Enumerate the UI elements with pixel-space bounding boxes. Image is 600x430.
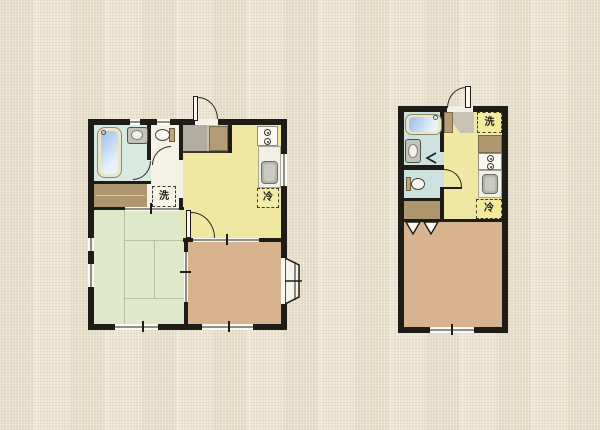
- washing-machine-box: 洗: [477, 112, 502, 133]
- bay-window: [285, 253, 305, 309]
- washbasin-bowl: [131, 130, 143, 140]
- sink-basin: [264, 164, 275, 181]
- window: [113, 324, 160, 330]
- tatami-line: [124, 210, 125, 324]
- washing-machine-box: 洗: [152, 186, 176, 207]
- burner-icon: [264, 138, 271, 145]
- entrance-door-arc: [198, 97, 218, 119]
- faucet-icon: [433, 115, 438, 120]
- main-room: [404, 222, 502, 327]
- window: [88, 262, 94, 289]
- washbasin-bowl: [408, 144, 418, 158]
- wall: [179, 125, 183, 160]
- tatami-room: [94, 210, 184, 324]
- burner-icon: [487, 163, 494, 170]
- tatami-line: [124, 298, 184, 299]
- sink-basin: [485, 177, 495, 191]
- burner-icon: [264, 129, 271, 136]
- entrance-opening: [195, 119, 218, 125]
- wall: [228, 125, 232, 153]
- door-tick: [226, 234, 228, 245]
- refrigerator-label: 冷: [484, 204, 494, 214]
- bathtub-water: [101, 131, 118, 174]
- burner-dot: [267, 132, 269, 134]
- wall: [94, 181, 151, 184]
- toilet-icon: [155, 129, 170, 141]
- wall: [440, 187, 444, 222]
- burner-dot: [490, 166, 492, 168]
- wall: [179, 198, 183, 210]
- faucet-icon: [101, 130, 106, 135]
- window-tick: [142, 321, 144, 332]
- wall: [404, 165, 444, 170]
- window-tick: [228, 321, 230, 332]
- entrance-door-arc: [447, 87, 466, 108]
- folding-door-icon: [424, 151, 438, 165]
- floor-plan-sheet: 冷 洗: [0, 0, 600, 430]
- washing-machine-label: 洗: [485, 118, 495, 128]
- toilet-door-leaf: [444, 187, 462, 189]
- closet-door-line: [96, 195, 145, 196]
- western-room: [188, 242, 281, 324]
- door-tick: [180, 271, 191, 273]
- burner-dot: [490, 158, 492, 160]
- sliding-door: [125, 207, 180, 211]
- stove-icon: [478, 153, 502, 170]
- refrigerator-box: 冷: [257, 188, 279, 208]
- shoe-cabinet: [209, 126, 228, 151]
- tatami-line: [154, 240, 155, 298]
- window: [281, 152, 287, 188]
- refrigerator-label: 冷: [263, 193, 273, 203]
- burner-dot: [267, 141, 269, 143]
- refrigerator-box: 冷: [476, 199, 502, 219]
- closet: [404, 201, 440, 219]
- burner-icon: [487, 155, 494, 162]
- washing-machine-label: 洗: [159, 192, 169, 202]
- window: [155, 119, 172, 125]
- hanger-icons: [404, 222, 440, 237]
- genkan-step: [183, 125, 207, 152]
- sliding-door: [184, 252, 188, 302]
- toilet-icon: [411, 178, 425, 190]
- wall: [404, 198, 444, 201]
- shoe-cabinet: [444, 112, 453, 133]
- window: [88, 236, 94, 253]
- window: [128, 119, 142, 125]
- window-tick: [451, 324, 453, 335]
- genkan-edge: [183, 151, 230, 153]
- stove-icon: [257, 126, 278, 146]
- kitchen-cabinet: [478, 135, 502, 153]
